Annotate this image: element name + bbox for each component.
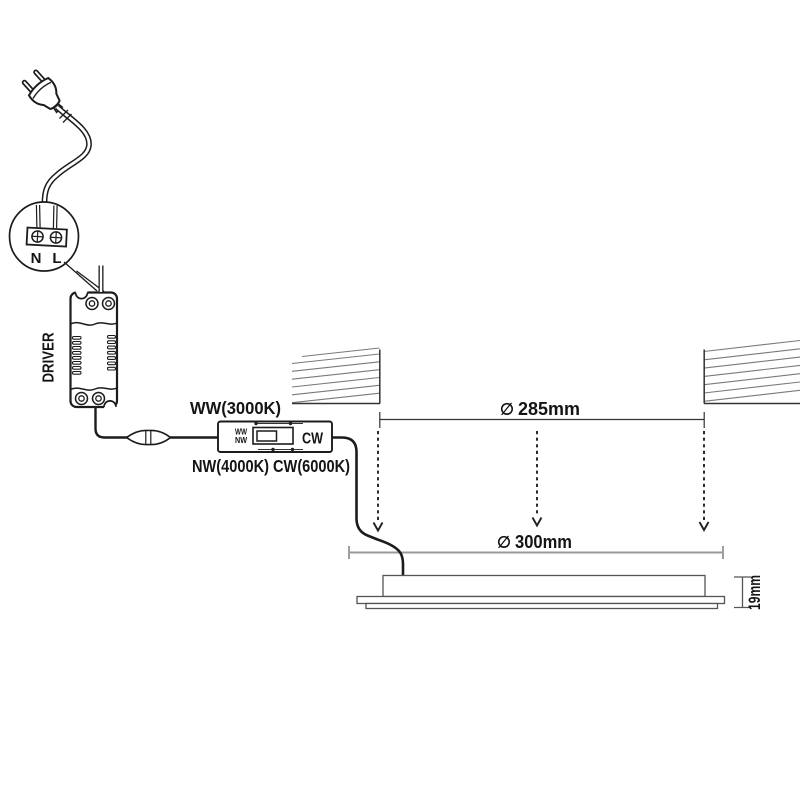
mains-cable xyxy=(45,107,90,203)
terminal-detail: N L xyxy=(10,202,105,293)
driver-label: DRIVER xyxy=(41,332,58,382)
mains-cable-core xyxy=(45,107,90,203)
ceiling-section-left xyxy=(292,348,380,404)
dim-19-value: 19mm xyxy=(745,575,764,610)
driver-notch-gap-bottom xyxy=(104,405,116,410)
detail-callout-lines xyxy=(64,262,104,292)
screw-icon xyxy=(103,298,115,310)
inline-connector xyxy=(127,430,171,444)
neutral-label: N xyxy=(31,250,42,267)
arrow-left-head xyxy=(374,523,383,531)
insert-direction-arrows xyxy=(374,431,709,531)
switch-cw-label: CW xyxy=(302,431,323,448)
arrow-right-head xyxy=(700,522,709,530)
switch-nw-small-label: NW xyxy=(235,436,247,445)
screw-icon xyxy=(93,393,105,405)
led-panel-side-view xyxy=(357,576,725,609)
installation-diagram: ∅ 285mm ∅ 300mm 19mm xyxy=(0,0,800,800)
ceiling-section-right xyxy=(704,341,800,404)
panel-body xyxy=(383,576,705,597)
panel-dimension: ∅ 300mm xyxy=(349,532,723,559)
panel-trim-lip xyxy=(366,604,718,609)
switch-top-label: WW(3000K) xyxy=(190,398,281,418)
ceiling-left-edges xyxy=(292,350,380,404)
live-label: L xyxy=(52,250,61,267)
dim-300-value: 300mm xyxy=(515,532,572,552)
screw-icon xyxy=(76,393,88,405)
arrow-middle-head xyxy=(533,518,542,526)
switch-knob xyxy=(257,431,277,441)
diagram-canvas: ∅ 285mm ∅ 300mm 19mm xyxy=(0,0,800,800)
dim-285-value: 285mm xyxy=(518,399,580,419)
height-dimension: 19mm xyxy=(734,575,764,610)
dim-300-diameter-symbol: ∅ xyxy=(497,535,511,552)
ceiling-left-hatch-lines xyxy=(292,348,380,403)
switch-bottom-label: NW(4000K) CW(6000K) xyxy=(192,456,350,476)
panel-trim-flange xyxy=(357,597,725,604)
led-driver: DRIVER xyxy=(41,290,118,410)
dim-285-diameter-symbol: ∅ xyxy=(500,402,514,419)
cutout-dimension: ∅ 285mm xyxy=(380,399,704,428)
terminal-block xyxy=(27,228,67,247)
ceiling-right-hatch-lines xyxy=(704,341,800,402)
driver-notch-gap-top xyxy=(76,290,88,295)
screw-icon xyxy=(86,298,98,310)
